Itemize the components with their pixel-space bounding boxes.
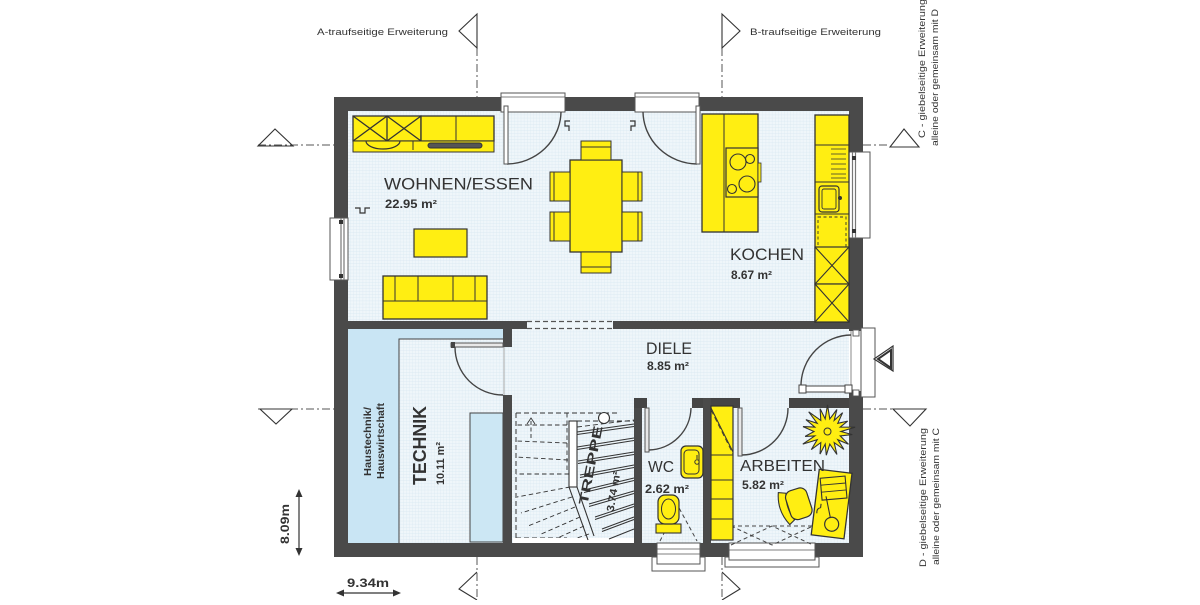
svg-text:WC: WC: [648, 459, 674, 476]
svg-text:5.82 m²: 5.82 m²: [742, 480, 784, 492]
svg-text:DIELE: DIELE: [646, 340, 692, 358]
svg-text:WOHNEN/ESSEN: WOHNEN/ESSEN: [384, 175, 533, 194]
svg-text:Hauswirtschaft: Hauswirtschaft: [376, 402, 387, 479]
svg-text:B-traufseitige Erweiterung: B-traufseitige Erweiterung: [750, 27, 881, 38]
svg-text:alleine oder gemeinsam mit C: alleine oder gemeinsam mit C: [931, 428, 942, 565]
svg-text:2.62 m²: 2.62 m²: [645, 484, 689, 496]
svg-text:8.09m: 8.09m: [278, 504, 292, 544]
svg-text:8.67 m²: 8.67 m²: [731, 270, 772, 282]
svg-text:10.11 m²: 10.11 m²: [435, 442, 447, 485]
svg-text:9.34m: 9.34m: [347, 576, 389, 590]
svg-text:8.85 m²: 8.85 m²: [647, 361, 689, 373]
svg-text:Haustechnik/: Haustechnik/: [363, 407, 374, 476]
svg-text:22.95 m²: 22.95 m²: [385, 199, 437, 211]
svg-text:D - giebelseitige Erweiterung: D - giebelseitige Erweiterung: [918, 428, 929, 567]
svg-text:A-traufseitige Erweiterung: A-traufseitige Erweiterung: [317, 27, 448, 38]
svg-text:ARBEITEN: ARBEITEN: [740, 458, 825, 475]
svg-text:alleine oder gemeinsam mit D: alleine oder gemeinsam mit D: [930, 9, 941, 146]
svg-text:KOCHEN: KOCHEN: [730, 245, 804, 264]
svg-text:TECHNIK: TECHNIK: [410, 406, 430, 485]
svg-text:C - giebelseitige Erweiterung: C - giebelseitige Erweiterung: [917, 0, 928, 138]
